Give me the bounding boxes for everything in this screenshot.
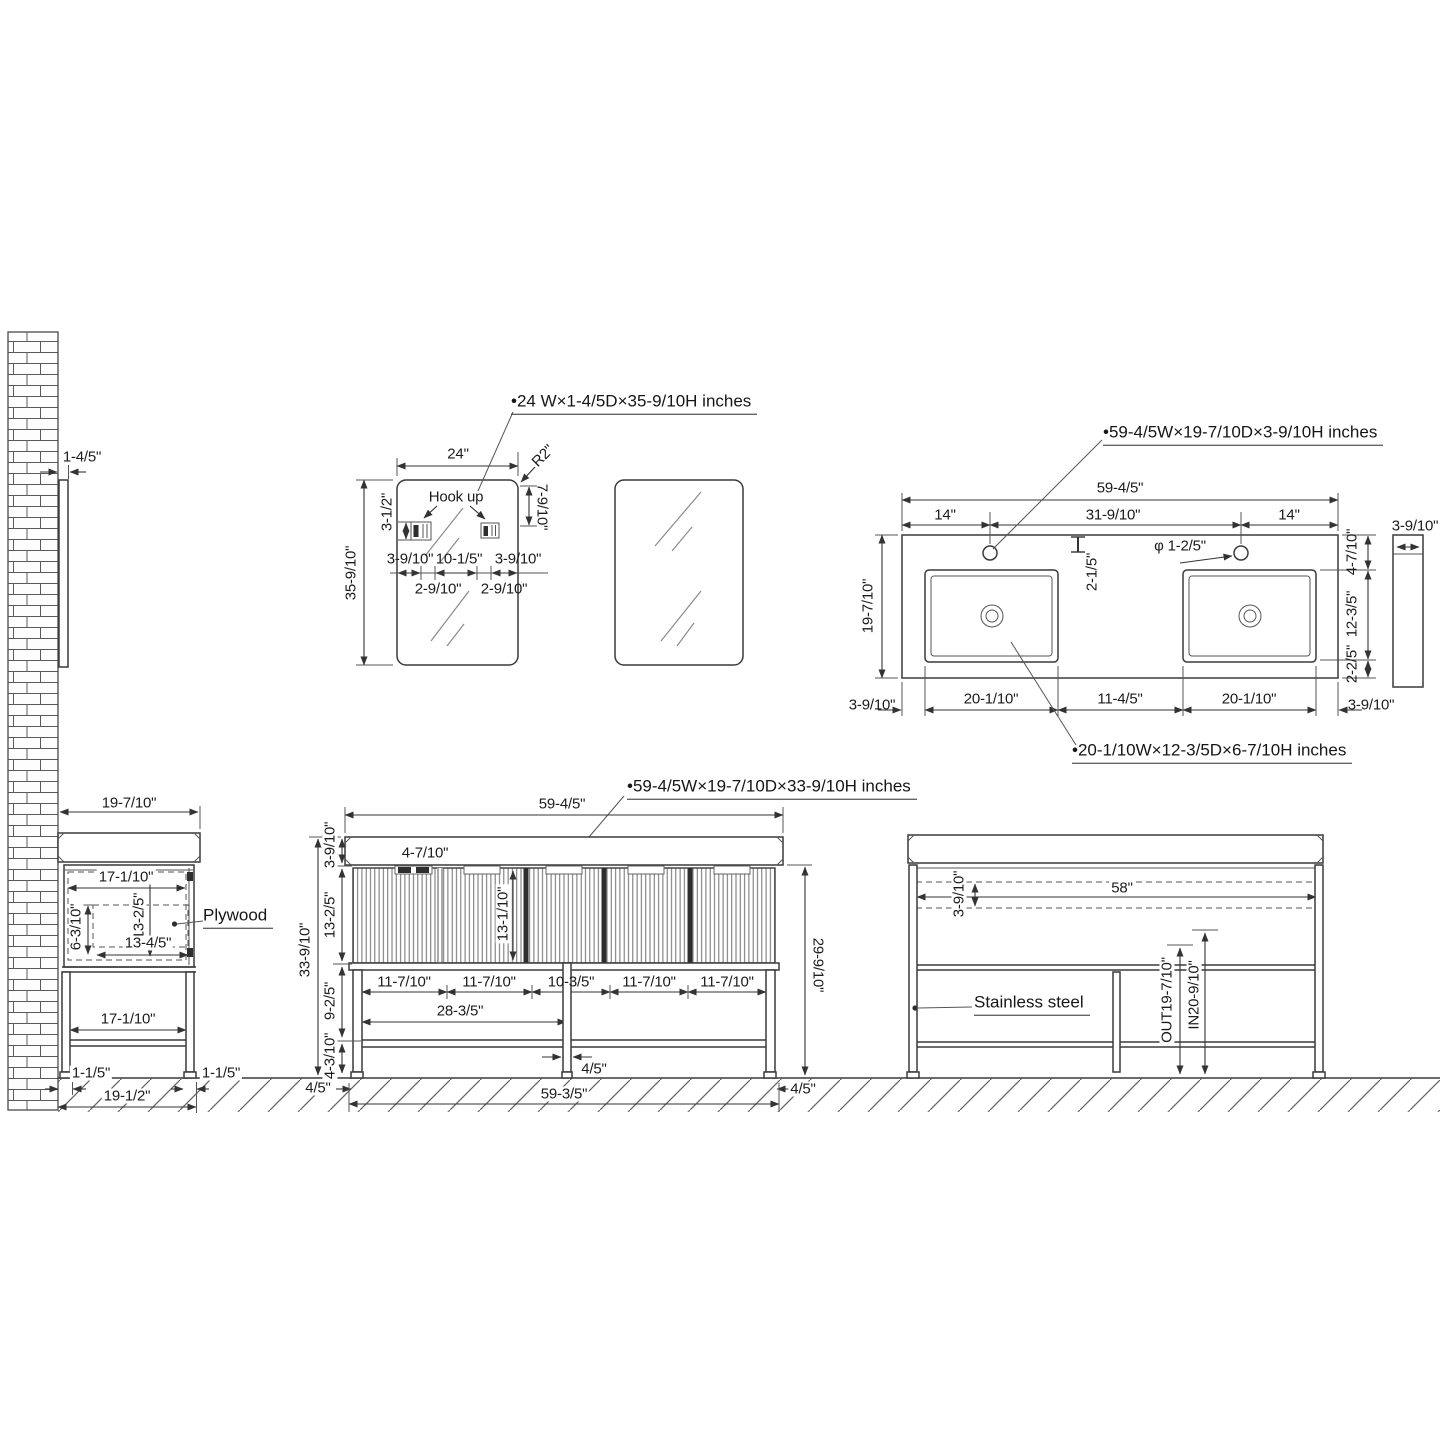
dim-back-out-height: OUT19-7/10" — [1160, 955, 1175, 1045]
dim-hook-right-offset: 3-9/10" — [495, 552, 541, 567]
dim-back-inner-width: 58" — [1109, 881, 1134, 896]
back-leg-right — [1315, 865, 1323, 1072]
dim-hook-inner-right: 2-9/10" — [481, 582, 527, 597]
dim-side-shelf-width: 17-1/10" — [101, 1012, 156, 1027]
dim-front-total-height: 33-9/10" — [298, 923, 313, 978]
vanity-callout-leader — [589, 796, 624, 837]
technical-drawing-canvas: •24 W×1-4/5D×35-9/10H inches 24" R2" 7-9… — [0, 0, 1445, 1445]
dim-hook-spacing: 10-1/5" — [436, 552, 482, 567]
callout-vanity: •59-4/5W×19-7/10D×33-9/10H inches — [627, 777, 917, 800]
dim-counter-front-edge: 2-2/5" — [1345, 645, 1360, 683]
dim-front-open-height: 9-2/5" — [323, 980, 338, 1022]
dim-hole-setback: 2-1/5" — [1085, 553, 1100, 591]
dim-side-depth: 19-7/10" — [102, 796, 157, 811]
side-leg-back — [186, 972, 194, 1072]
dim-front-half-width: 28-3/5" — [437, 1004, 483, 1019]
dim-panel-5: 11-7/10" — [700, 975, 754, 990]
dim-front-width: 59-4/5" — [539, 797, 585, 812]
dim-panel-4: 11-7/10" — [622, 975, 676, 990]
mirror-plain-view — [615, 480, 743, 665]
callout-mirror: •24 W×1-4/5D×35-9/10H inches — [511, 392, 757, 415]
dim-front-door-inner-height: 13-1/10" — [496, 885, 511, 944]
dim-center-leg-width: 4/5" — [579, 1062, 608, 1077]
dim-hook-inner-left: 2-9/10" — [415, 582, 461, 597]
dim-back-backsplash: 3-9/10" — [952, 869, 967, 919]
drawing-linework — [0, 0, 1445, 1445]
dim-front-frame-height: 29-9/10" — [811, 938, 826, 993]
dim-front-top-thickness: 3-9/10" — [323, 820, 338, 870]
fluted-doors — [353, 868, 775, 963]
countertop-callout-leader — [993, 440, 1102, 549]
dim-mirror-hook-height: 3-1/2" — [380, 493, 395, 531]
handle-notch — [628, 866, 664, 874]
dim-side-floor-depth: 19-1/2" — [102, 1089, 152, 1104]
dim-side-cutout-width: 13-4/5" — [123, 936, 173, 951]
dim-front-handle: 4-7/10" — [402, 846, 448, 861]
dim-mirror-width: 24" — [447, 447, 468, 462]
label-stainless-steel: Stainless steel — [974, 993, 1090, 1016]
brick-wall — [8, 332, 58, 1110]
vanity-back-view — [907, 835, 1325, 1078]
dim-hook-left-offset: 3-9/10" — [387, 552, 433, 567]
mirror-callout-leader — [478, 412, 513, 491]
dim-sink-left-width: 20-1/10" — [964, 692, 1019, 707]
dim-panel-3: 10-3/5" — [548, 975, 594, 990]
label-hook-up: Hook up — [429, 490, 483, 505]
front-leg-left — [353, 970, 362, 1072]
dim-panel-1: 11-7/10" — [377, 975, 431, 990]
dim-side-cutout-height: 6-3/10" — [69, 902, 84, 952]
hinge-bottom — [187, 948, 193, 957]
dim-mirror-wall-gap: 1-4/5" — [63, 450, 101, 465]
front-leg-right — [766, 970, 775, 1072]
dim-counter-thickness: 3-9/10" — [1392, 519, 1438, 534]
dim-side-opening-width: 17-1/10" — [97, 870, 156, 885]
label-plywood: Plywood — [203, 906, 273, 929]
dim-front-leg-height: 4-3/10" — [323, 1031, 338, 1081]
dim-counter-width: 59-4/5" — [1097, 481, 1143, 496]
dim-side-back-leg: 1-1/5" — [200, 1066, 242, 1081]
dim-back-in-height: IN20-9/10" — [1187, 958, 1202, 1031]
side-leg-front — [62, 972, 70, 1072]
dim-left-leg-width: 4/5" — [303, 1081, 332, 1096]
side-countertop — [58, 833, 200, 862]
back-post-center — [1113, 972, 1120, 1072]
dim-counter-back-edge: 4-7/10" — [1345, 529, 1360, 575]
vanity-front-view — [309, 796, 812, 1112]
dim-counter-depth: 19-7/10" — [861, 579, 876, 634]
dim-hole-spacing: 31-9/10" — [1086, 508, 1141, 523]
dim-side-front-leg: 1-1/5" — [70, 1066, 112, 1081]
handle-notch — [714, 866, 750, 874]
handle-notch — [546, 866, 582, 874]
back-leg-left — [909, 865, 917, 1072]
dim-right-leg-width: 4/5" — [788, 1082, 817, 1097]
back-countertop — [908, 835, 1323, 863]
callout-countertop: •59-4/5W×19-7/10D×3-9/10H inches — [1103, 423, 1383, 446]
dim-hole-left: 14" — [934, 508, 955, 523]
dim-mirror-height: 35-9/10" — [344, 546, 359, 601]
stainless-leader — [918, 1007, 972, 1008]
callout-sink: •20-1/10W×12-3/5D×6-7/10H inches — [1072, 741, 1352, 764]
dim-front-base-width: 59-3/5" — [539, 1087, 589, 1102]
dim-bottom-right-edge: 3-9/10" — [1348, 698, 1394, 713]
dim-sink-gap: 11-4/5" — [1097, 692, 1142, 707]
dim-panel-2: 11-7/10" — [462, 975, 516, 990]
handle-notch — [464, 866, 500, 874]
dim-hole-diameter: φ 1-2/5" — [1154, 539, 1206, 554]
dim-bottom-left-edge: 3-9/10" — [849, 698, 895, 713]
hinge-top — [187, 872, 193, 881]
dim-hole-right: 14" — [1278, 508, 1299, 523]
floor — [58, 1078, 1440, 1112]
dim-sink-depth: 12-3/5" — [1345, 591, 1360, 637]
dim-front-door-height: 13-2/5" — [323, 890, 338, 940]
dim-mirror-hook-top-offset: 7-9/10" — [535, 484, 550, 530]
dim-sink-right-width: 20-1/10" — [1222, 692, 1277, 707]
countertop-side-profile — [1393, 535, 1423, 687]
